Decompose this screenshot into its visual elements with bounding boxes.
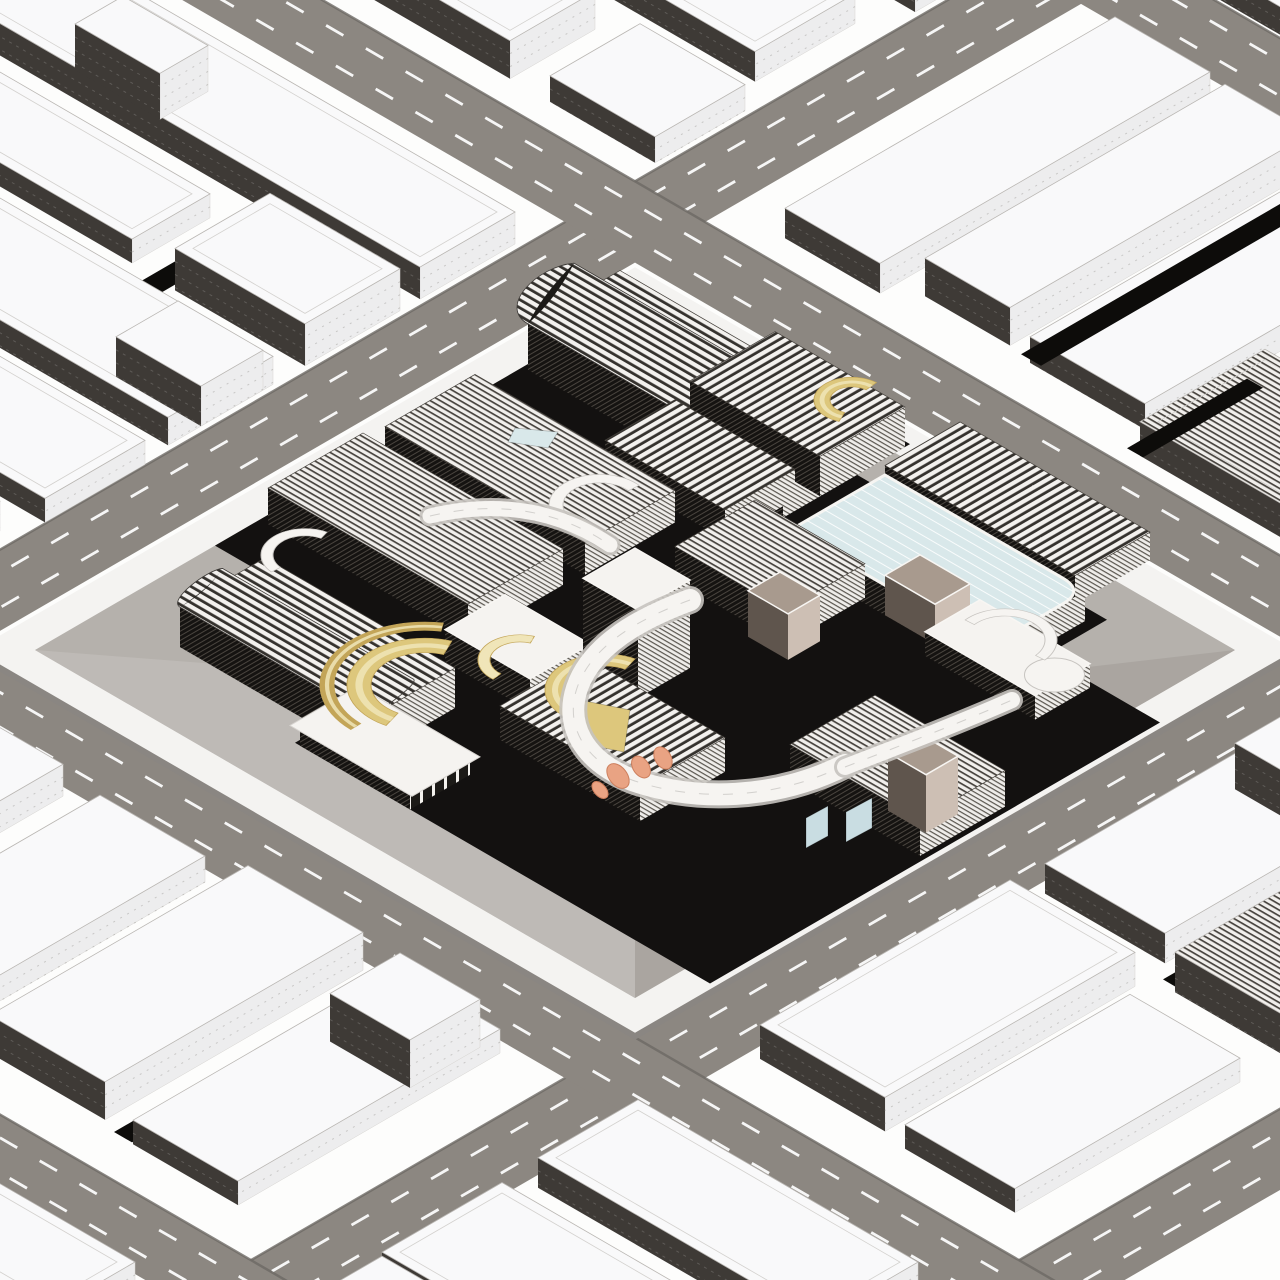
rounded-bar-end [1025, 658, 1085, 692]
screenshot-root [0, 0, 1280, 1280]
axonometric-city-scene [0, 0, 1280, 1280]
